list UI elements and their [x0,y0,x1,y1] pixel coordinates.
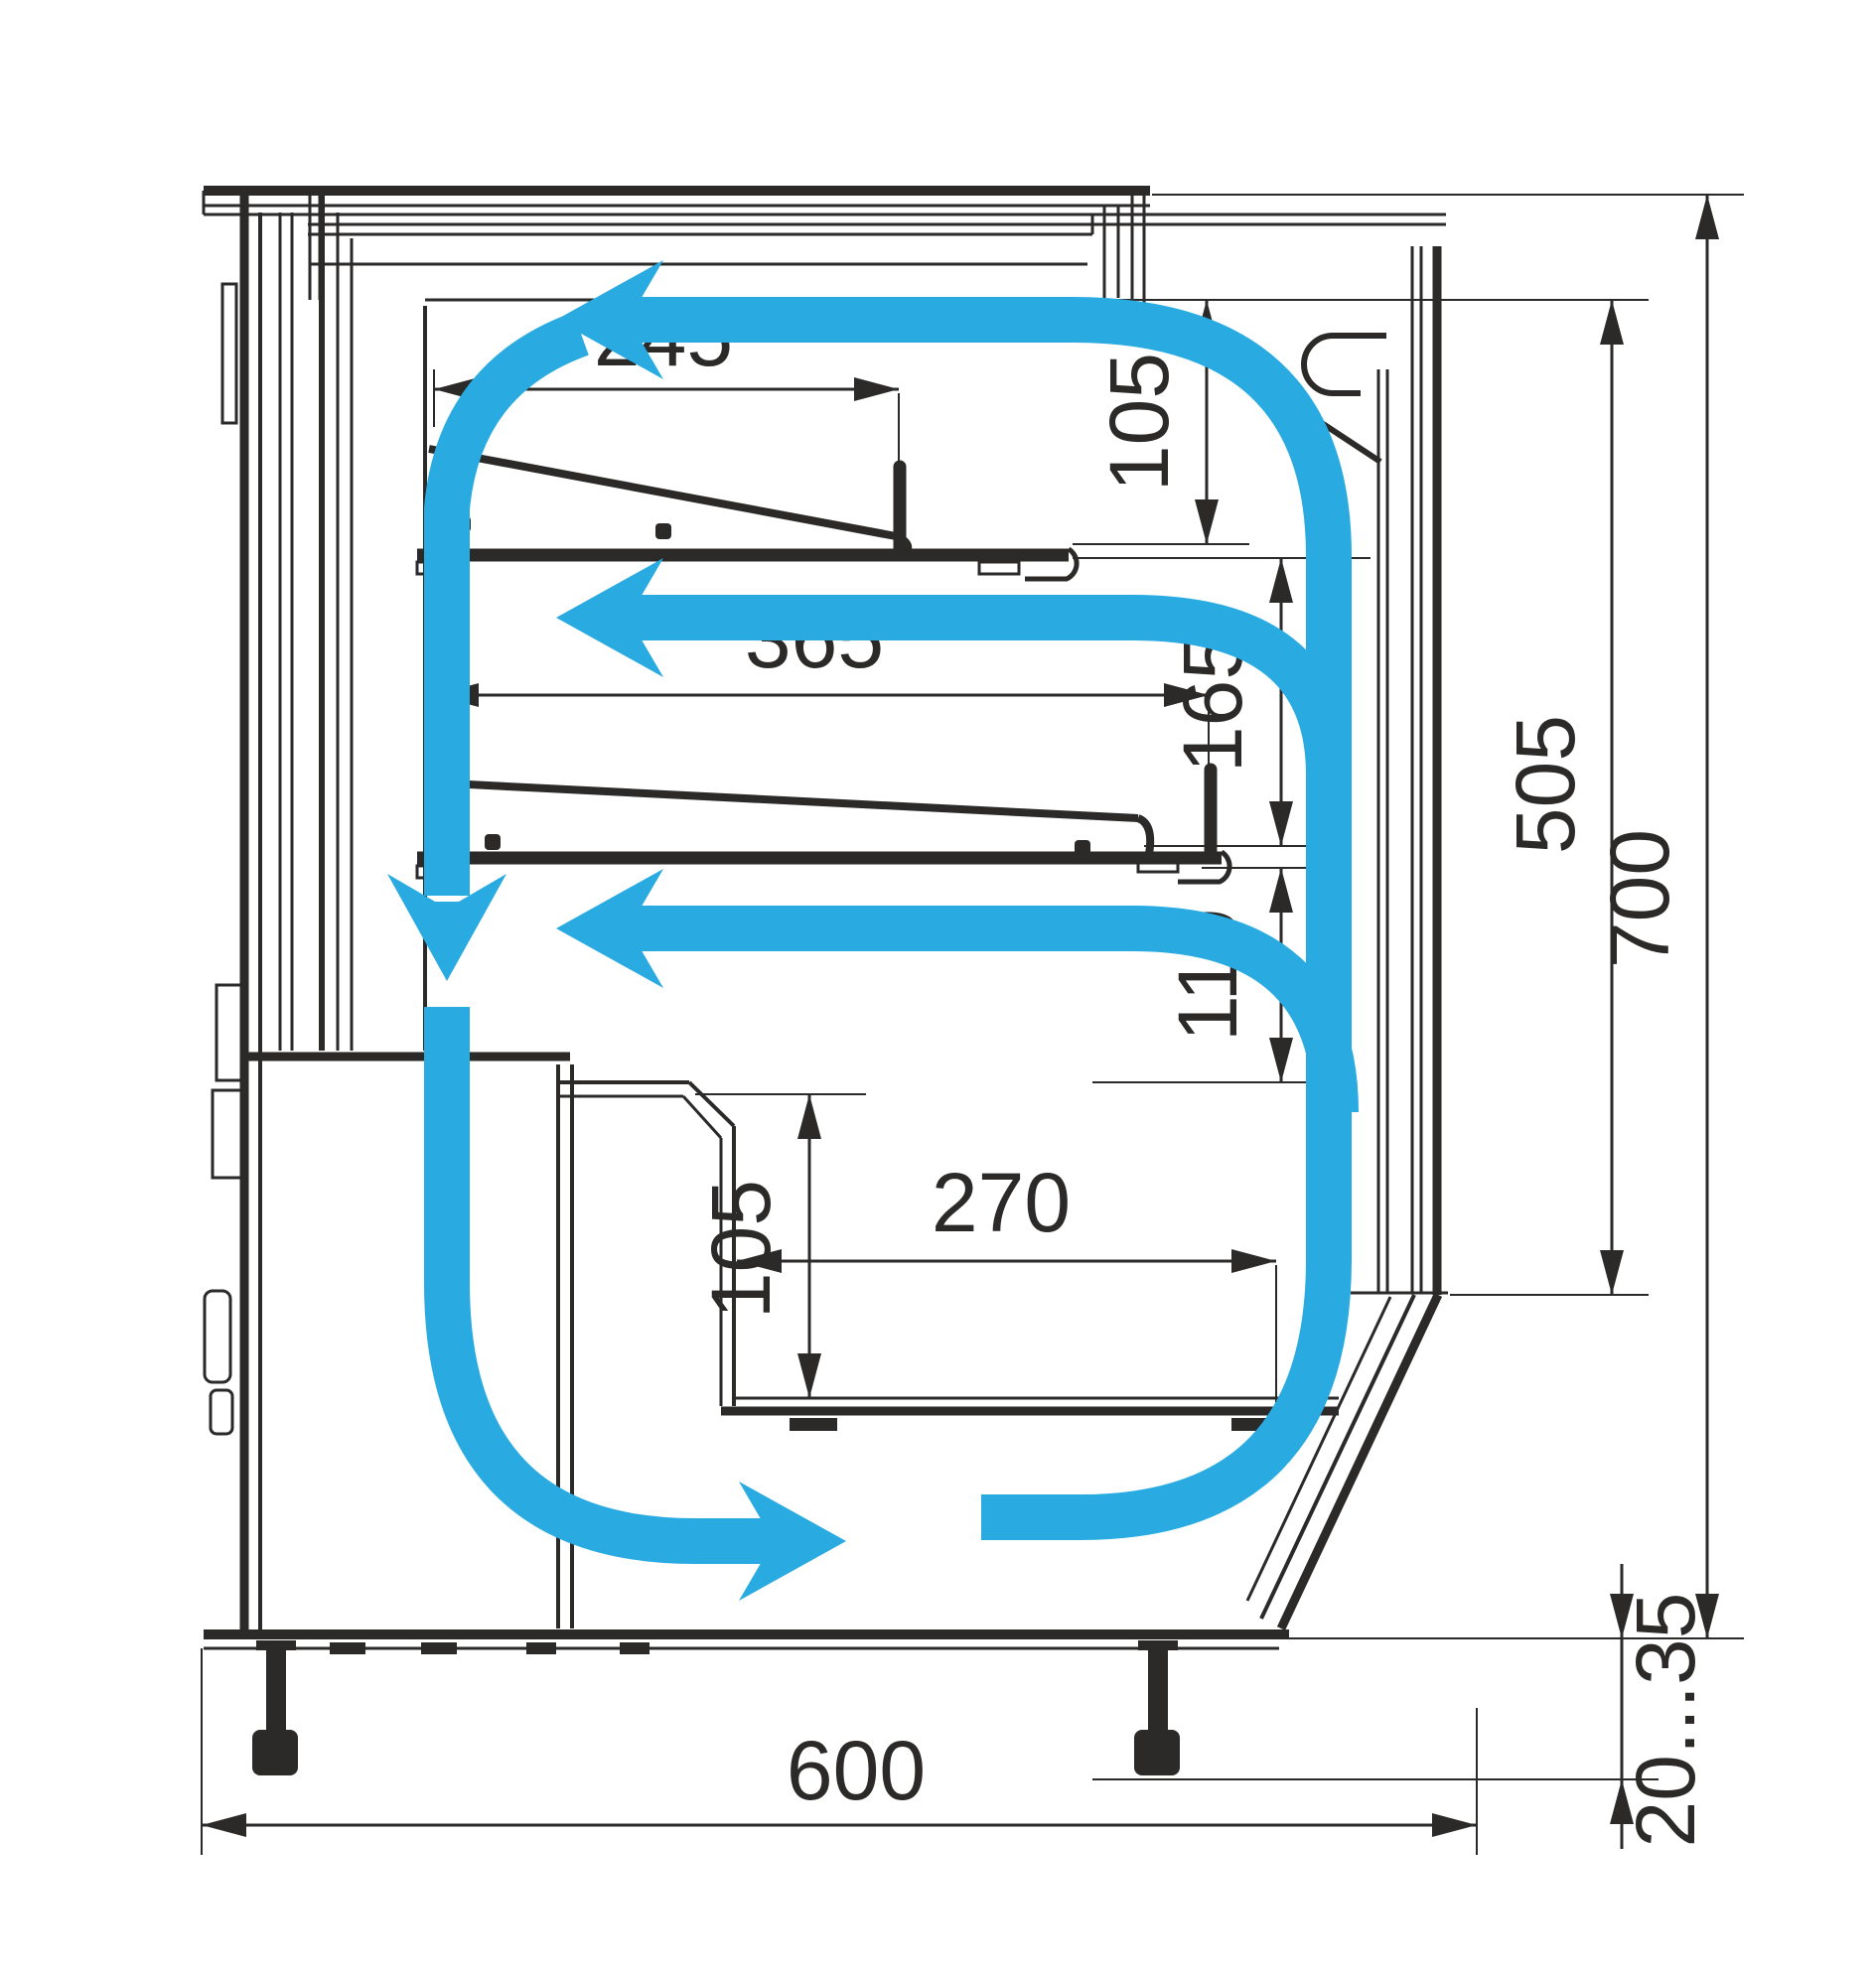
dim-overall-depth: 600 [202,1648,1477,1855]
dim-well-depth: 270 [737,1156,1276,1410]
dim-105-top-label: 105 [1092,353,1186,492]
glass-top-bracket [1304,336,1386,393]
step-and-deck [556,1082,1339,1431]
display-case-cross-section: 245 105 365 165 [0,0,1876,1981]
back-wall [205,195,425,1636]
shelf-middle [417,770,1229,882]
dim-505-label: 505 [1499,715,1592,854]
dim-600-label: 600 [787,1724,926,1817]
dim-700-label: 700 [1593,829,1686,968]
dim-270-label: 270 [932,1156,1071,1249]
shelf-top [417,449,1077,579]
machine-compartment [240,1057,572,1628]
right-leg [1134,1640,1180,1775]
dim-leg-adjustment: 20...35 [1092,1564,1712,1849]
front-glass [1351,246,1448,1295]
technical-drawing-page: 245 105 365 165 [0,0,1876,1981]
dim-105-bottom-label: 105 [694,1180,788,1319]
left-leg [252,1640,298,1775]
adjustable-legs [252,1640,1180,1775]
airflow-back-down [447,334,581,896]
base [204,1634,1289,1654]
dim-20-35-label: 20...35 [1619,1593,1712,1848]
